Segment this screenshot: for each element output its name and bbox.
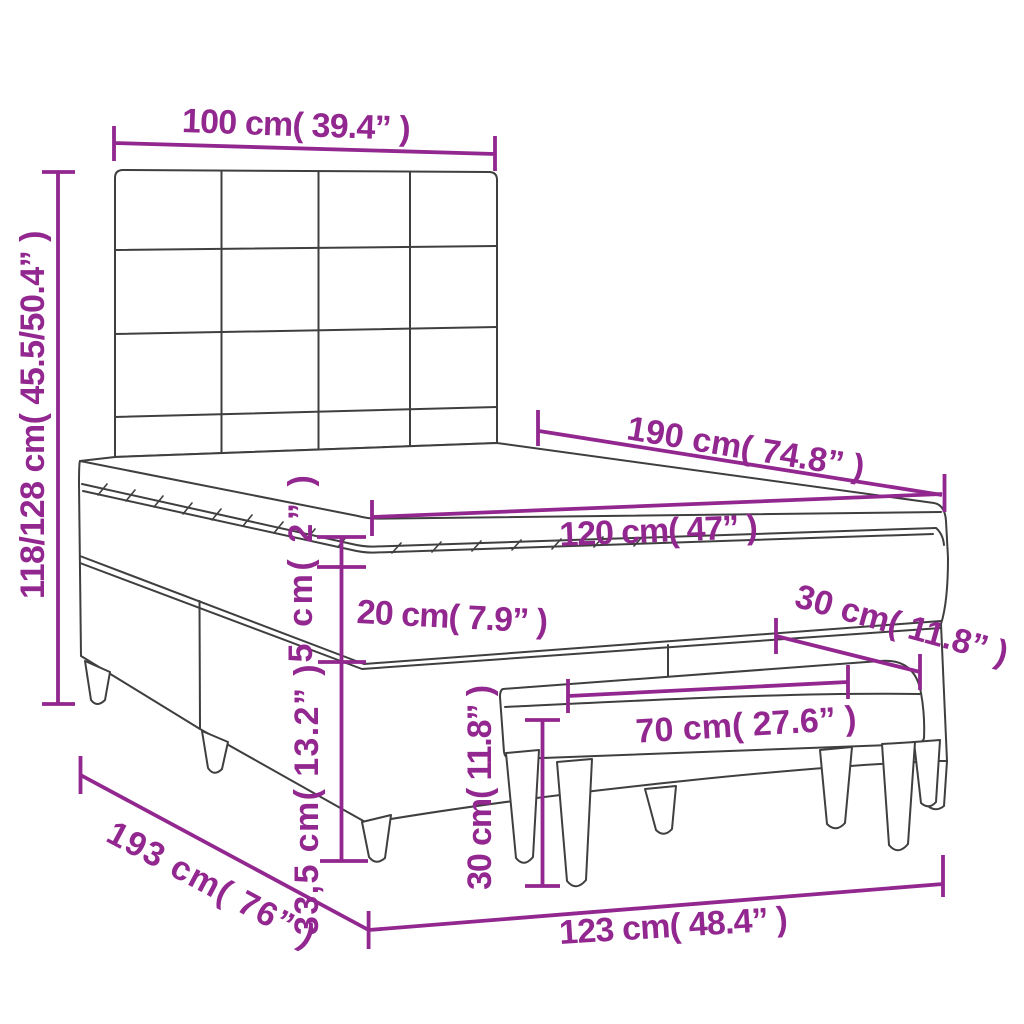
svg-text:118/128 cm( 45.5/50.4” ): 118/128 cm( 45.5/50.4” ): [14, 231, 52, 599]
svg-text:120 cm( 47” ): 120 cm( 47” ): [559, 508, 758, 554]
svg-text:100 cm( 39.4” ): 100 cm( 39.4” ): [181, 102, 410, 148]
svg-text:5 cm( 2” ): 5 cm( 2” ): [282, 472, 320, 663]
svg-text:33,5 cm( 13.2” ): 33,5 cm( 13.2” ): [288, 663, 326, 935]
svg-text:30 cm( 11.8” ): 30 cm( 11.8” ): [461, 686, 499, 890]
